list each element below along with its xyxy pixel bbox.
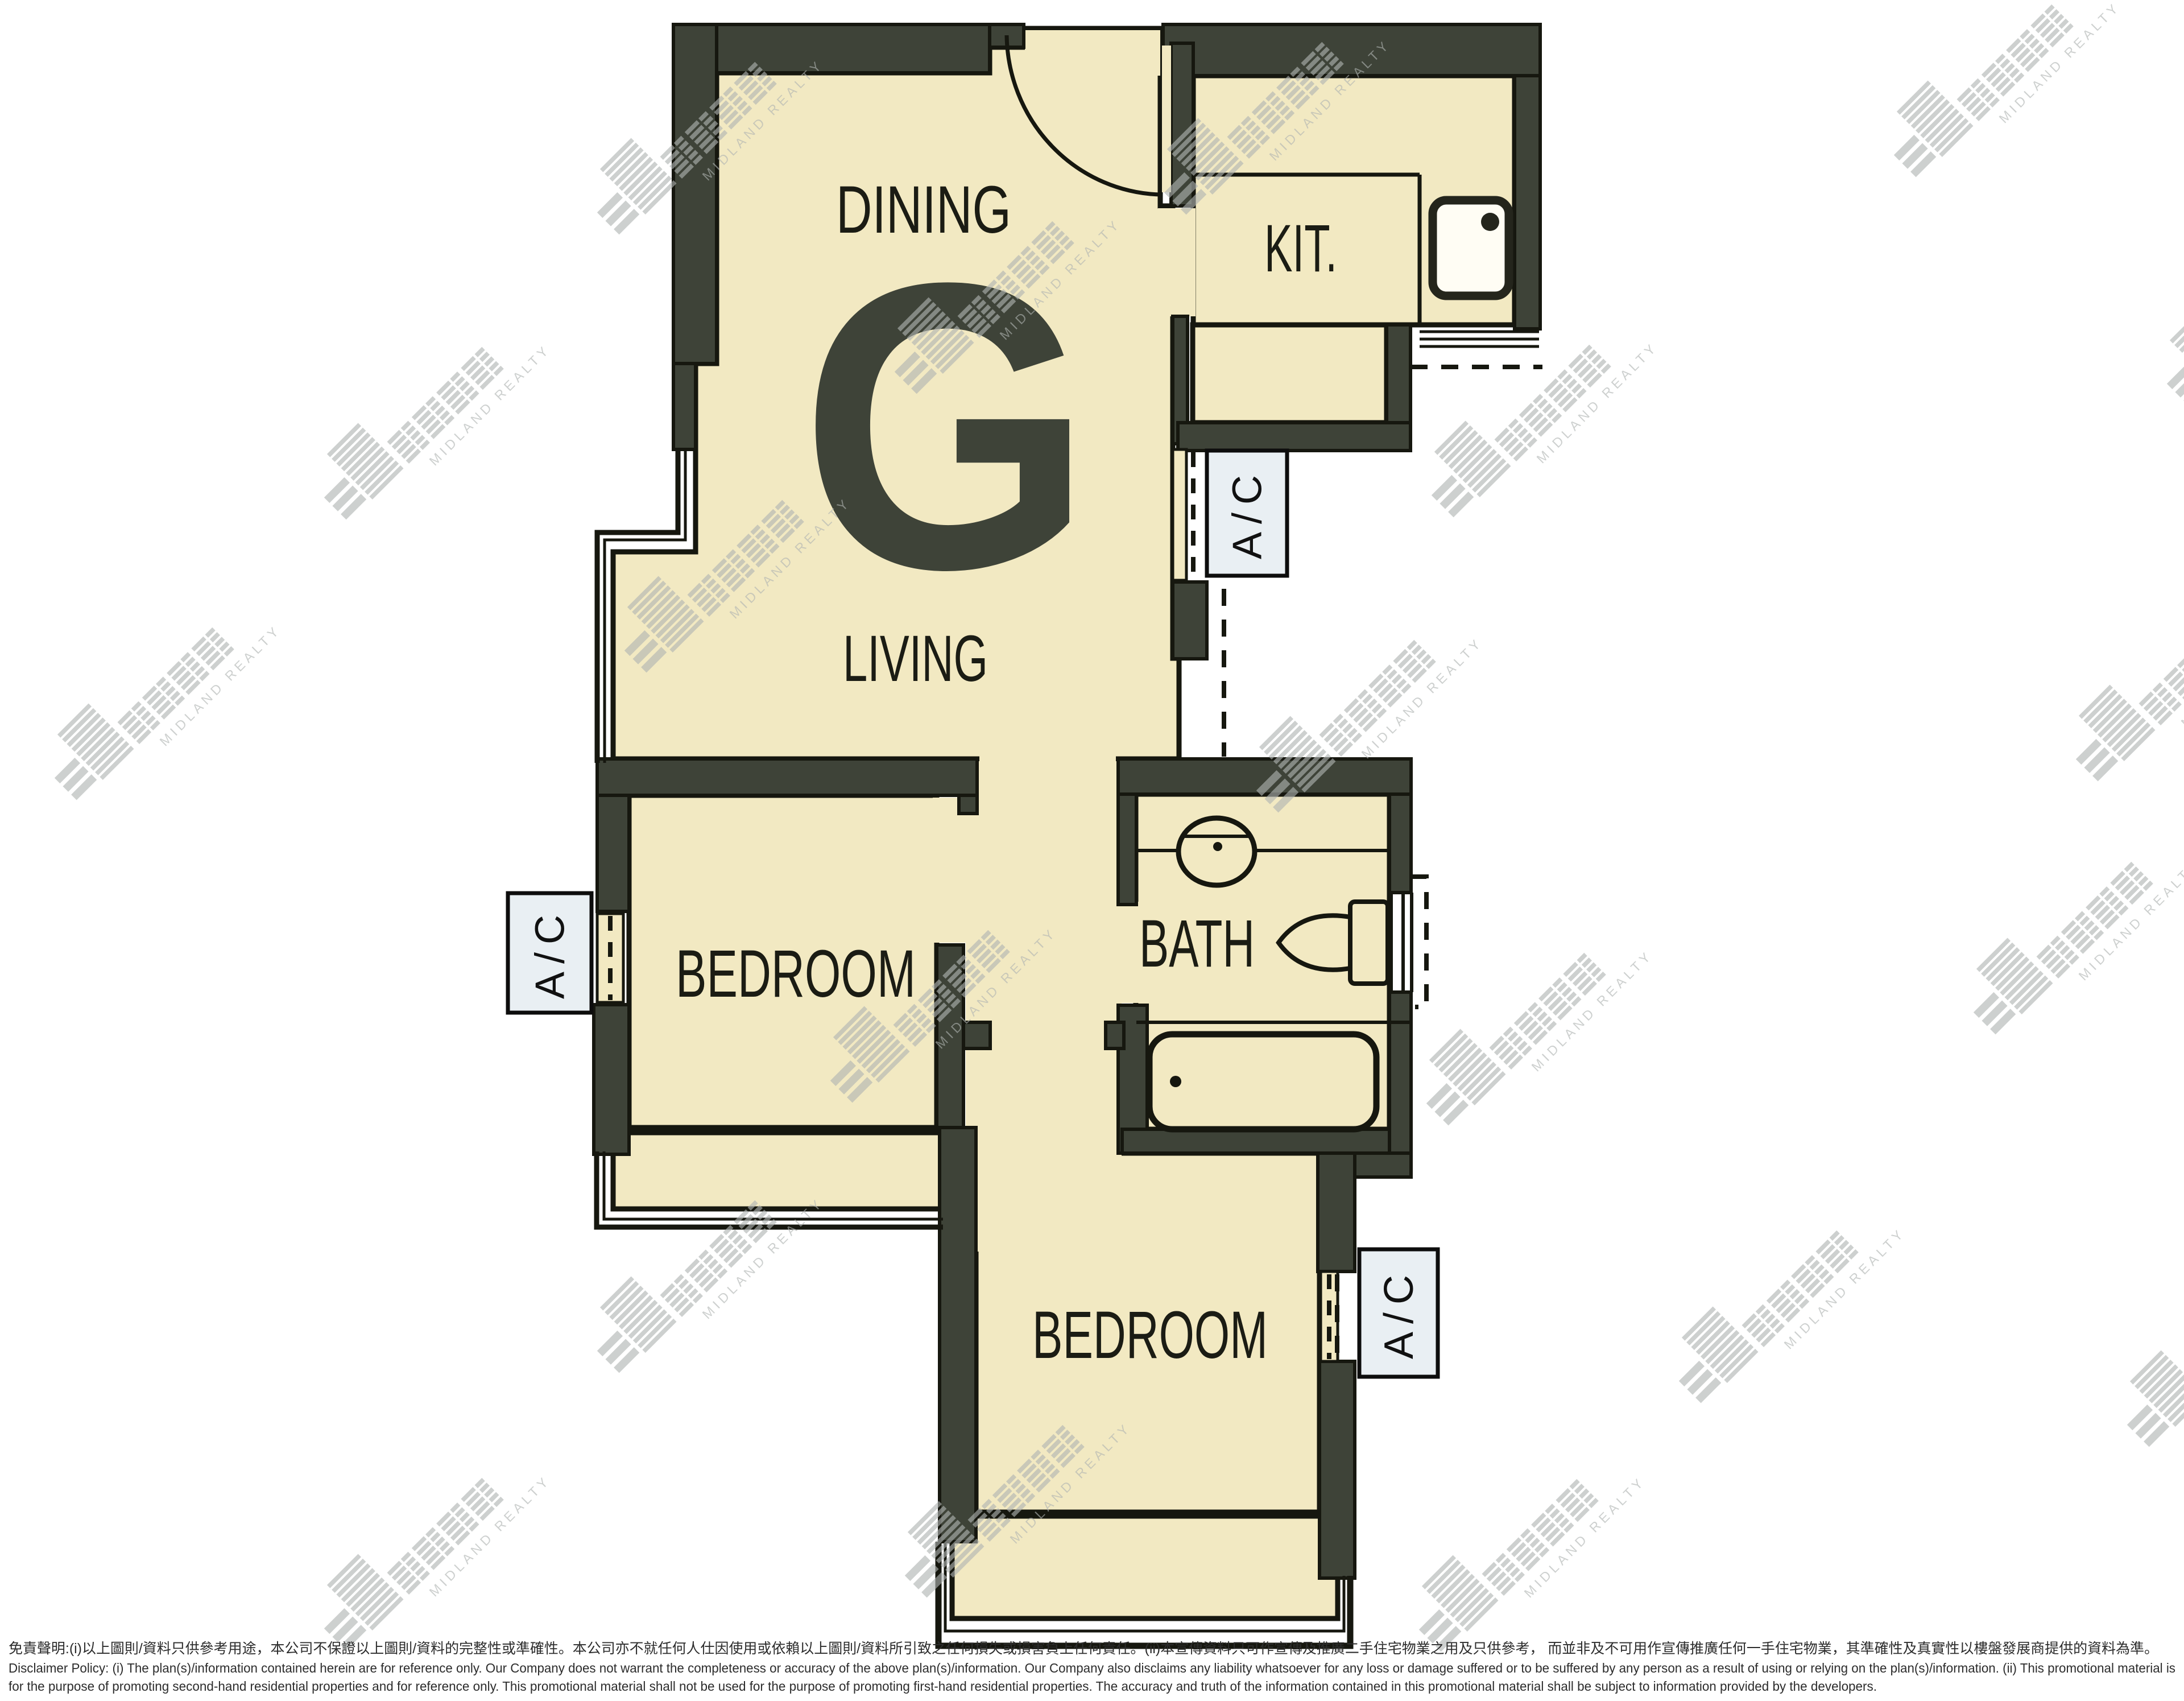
svg-text:Disclaimer Policy: (i) The pla: Disclaimer Policy: (i) The plan(s)/infor… (9, 1661, 2175, 1675)
svg-text:BEDROOM: BEDROOM (676, 936, 916, 1011)
svg-text:免責聲明:(i)以上圖則/資料只供參考用途，本公司不保證以上: 免責聲明:(i)以上圖則/資料只供參考用途，本公司不保證以上圖則/資料的完整性或… (9, 1641, 2158, 1657)
svg-text:for the purpose of promoting s: for the purpose of promoting second-hand… (9, 1679, 1877, 1694)
svg-text:BEDROOM: BEDROOM (1032, 1298, 1268, 1373)
svg-text:G: G (800, 198, 1093, 654)
svg-text:A/C: A/C (1376, 1267, 1422, 1359)
svg-text:KIT.: KIT. (1264, 211, 1337, 286)
svg-text:A/C: A/C (1225, 467, 1271, 559)
svg-text:BATH: BATH (1139, 906, 1255, 981)
svg-text:LIVING: LIVING (843, 622, 988, 695)
svg-text:A/C: A/C (528, 907, 573, 999)
